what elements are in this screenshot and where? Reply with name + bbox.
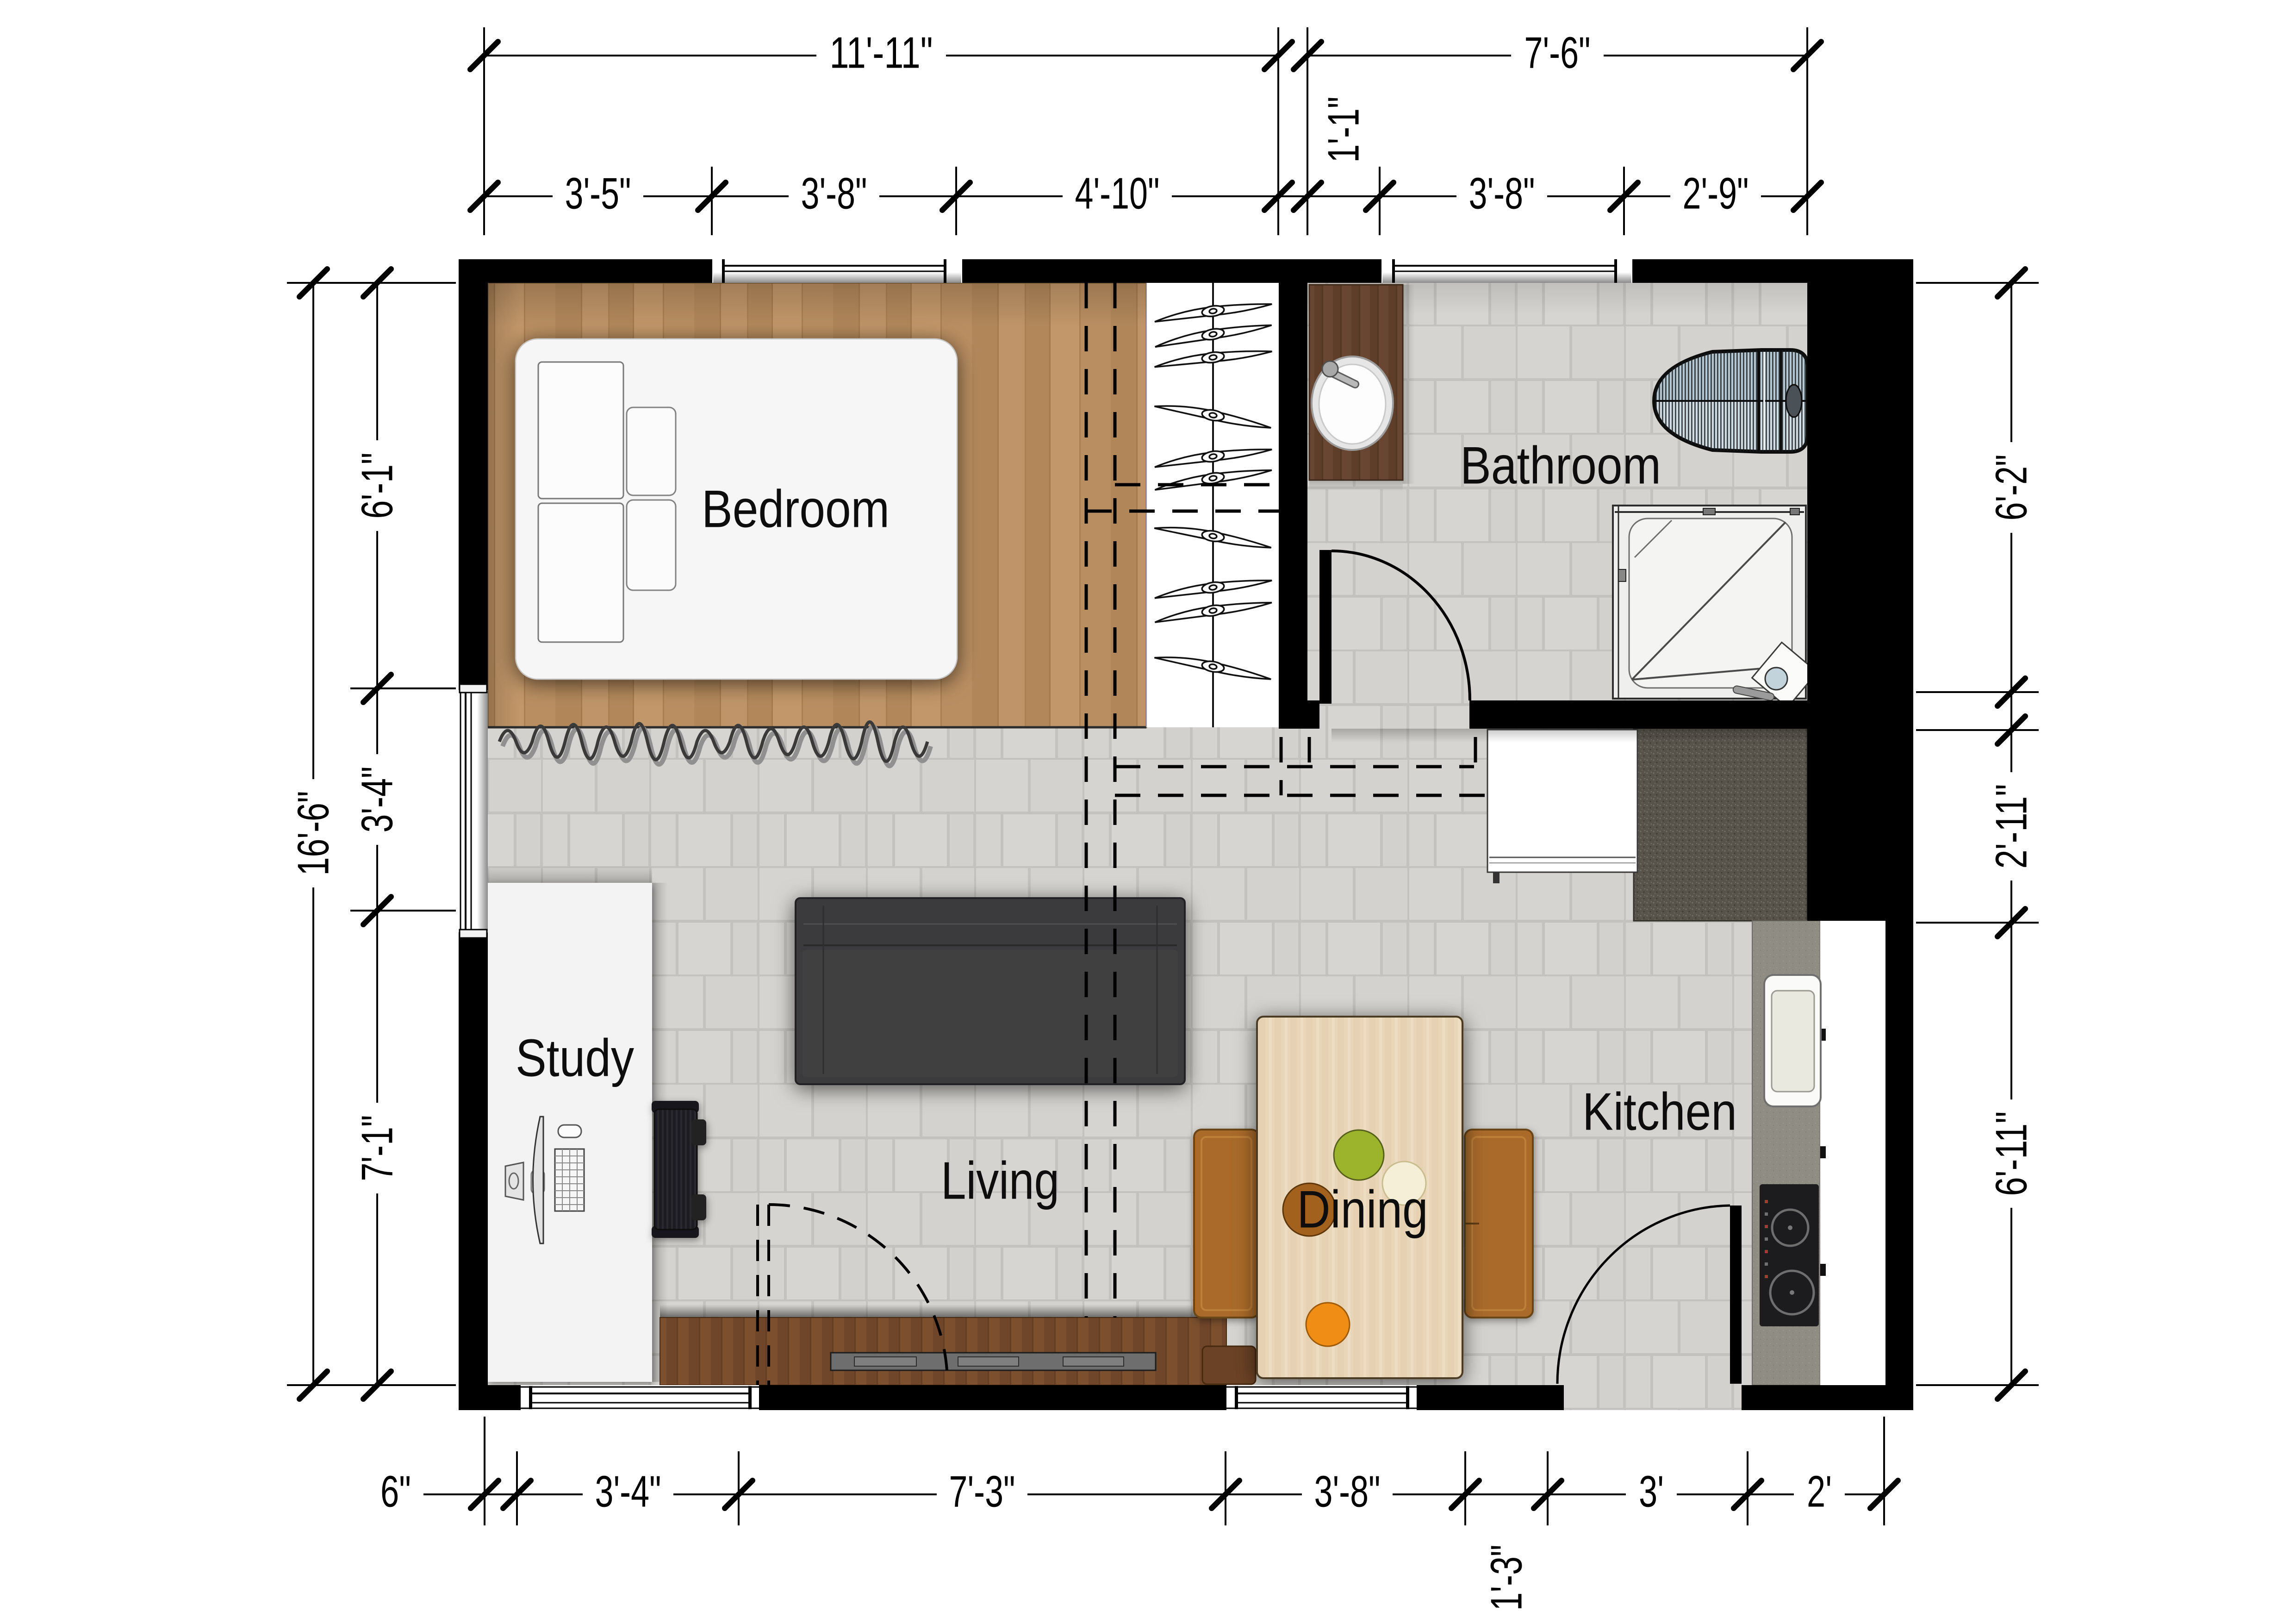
- svg-text:6'-1": 6'-1": [353, 453, 402, 519]
- svg-text:Kitchen: Kitchen: [1582, 1083, 1737, 1142]
- svg-text:7'-6": 7'-6": [1524, 28, 1591, 78]
- svg-text:3': 3': [1639, 1467, 1664, 1517]
- svg-text:6'-11": 6'-11": [1987, 1112, 2036, 1196]
- svg-text:3'-5": 3'-5": [565, 169, 631, 219]
- svg-text:3'-4": 3'-4": [595, 1467, 661, 1517]
- svg-text:3'-4": 3'-4": [353, 767, 402, 833]
- svg-text:4'-10": 4'-10": [1075, 169, 1160, 219]
- svg-text:2': 2': [1807, 1467, 1832, 1517]
- svg-text:1'-3": 1'-3": [1482, 1545, 1531, 1611]
- svg-text:Living: Living: [941, 1152, 1059, 1211]
- svg-text:1'-1": 1'-1": [1319, 97, 1369, 163]
- svg-text:6'-2": 6'-2": [1987, 455, 2036, 521]
- svg-text:11'-11": 11'-11": [830, 28, 933, 78]
- svg-text:Bedroom: Bedroom: [702, 480, 890, 539]
- svg-text:Dining: Dining: [1297, 1181, 1428, 1239]
- svg-text:2'-11": 2'-11": [1987, 784, 2036, 869]
- svg-text:3'-8": 3'-8": [801, 169, 867, 219]
- svg-text:Study: Study: [516, 1029, 634, 1088]
- svg-text:6": 6": [380, 1467, 411, 1517]
- svg-text:3'-8": 3'-8": [1314, 1467, 1381, 1517]
- svg-text:7'-1": 7'-1": [353, 1115, 402, 1181]
- svg-text:Bathroom: Bathroom: [1460, 437, 1661, 495]
- svg-text:16'-6": 16'-6": [289, 791, 338, 876]
- svg-text:3'-8": 3'-8": [1469, 169, 1535, 219]
- svg-text:7'-3": 7'-3": [949, 1467, 1015, 1517]
- svg-text:2'-9": 2'-9": [1683, 169, 1749, 219]
